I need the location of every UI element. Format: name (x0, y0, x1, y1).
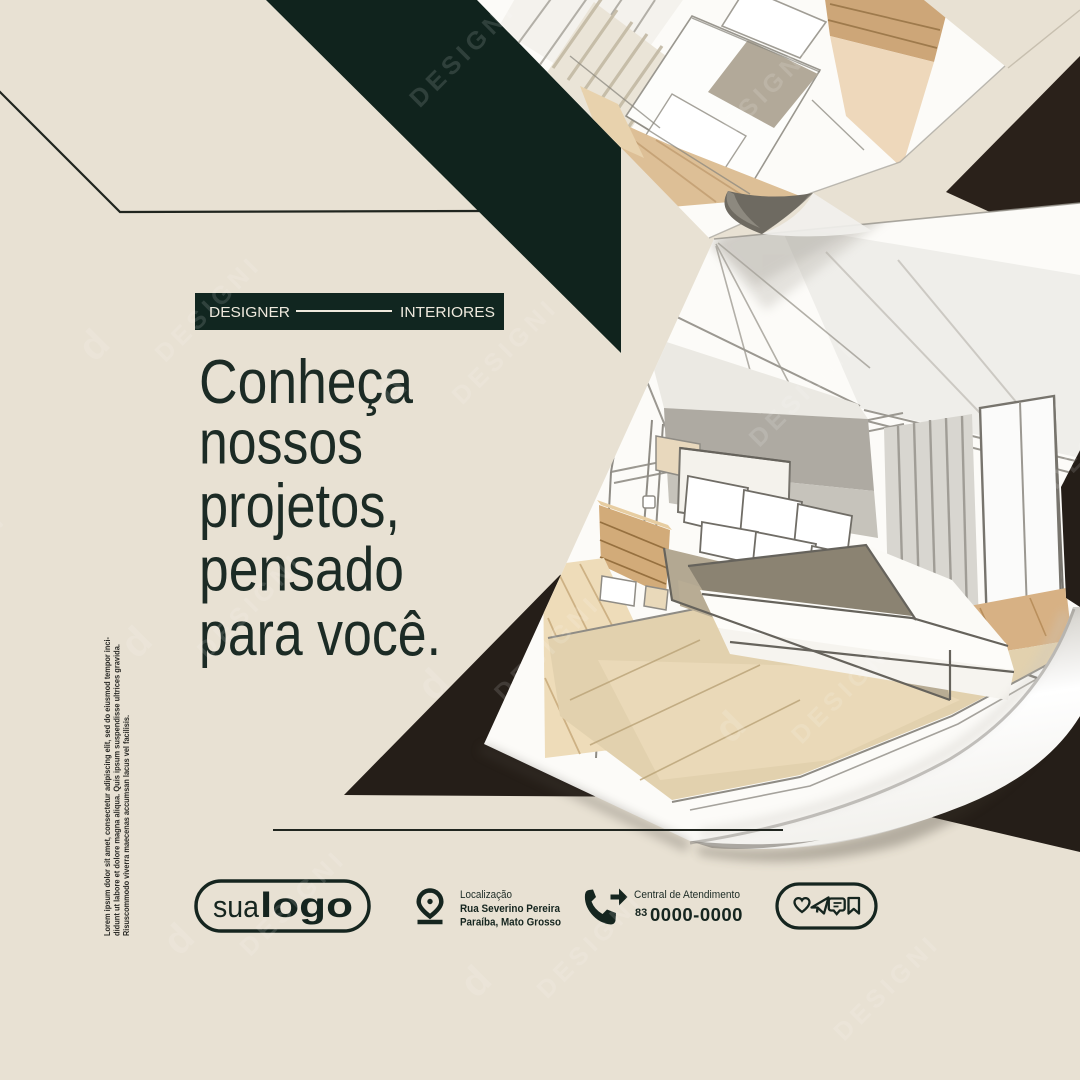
svg-text:nossos: nossos (199, 409, 363, 478)
svg-text:Rua Severino Pereira: Rua Severino Pereira (460, 903, 561, 915)
svg-text:0000-0000: 0000-0000 (650, 904, 743, 925)
svg-text:didunt ut labore et dolore mag: didunt ut labore et dolore magna aliqua.… (112, 644, 122, 936)
svg-text:Localização: Localização (460, 889, 512, 901)
svg-text:sua: sua (213, 889, 260, 924)
svg-text:Paraíba, Mato Grosso: Paraíba, Mato Grosso (460, 917, 561, 929)
svg-text:Central de Atendimento: Central de Atendimento (634, 889, 740, 901)
svg-text:Lorem ipsum dolor sit amet, co: Lorem ipsum dolor sit amet, consectetur … (102, 637, 112, 936)
svg-text:projetos,: projetos, (199, 472, 400, 541)
svg-text:INTERIORES: INTERIORES (400, 304, 495, 321)
svg-text:Risuscommodo viverra maecenas: Risuscommodo viverra maecenas accumsan l… (121, 715, 131, 936)
